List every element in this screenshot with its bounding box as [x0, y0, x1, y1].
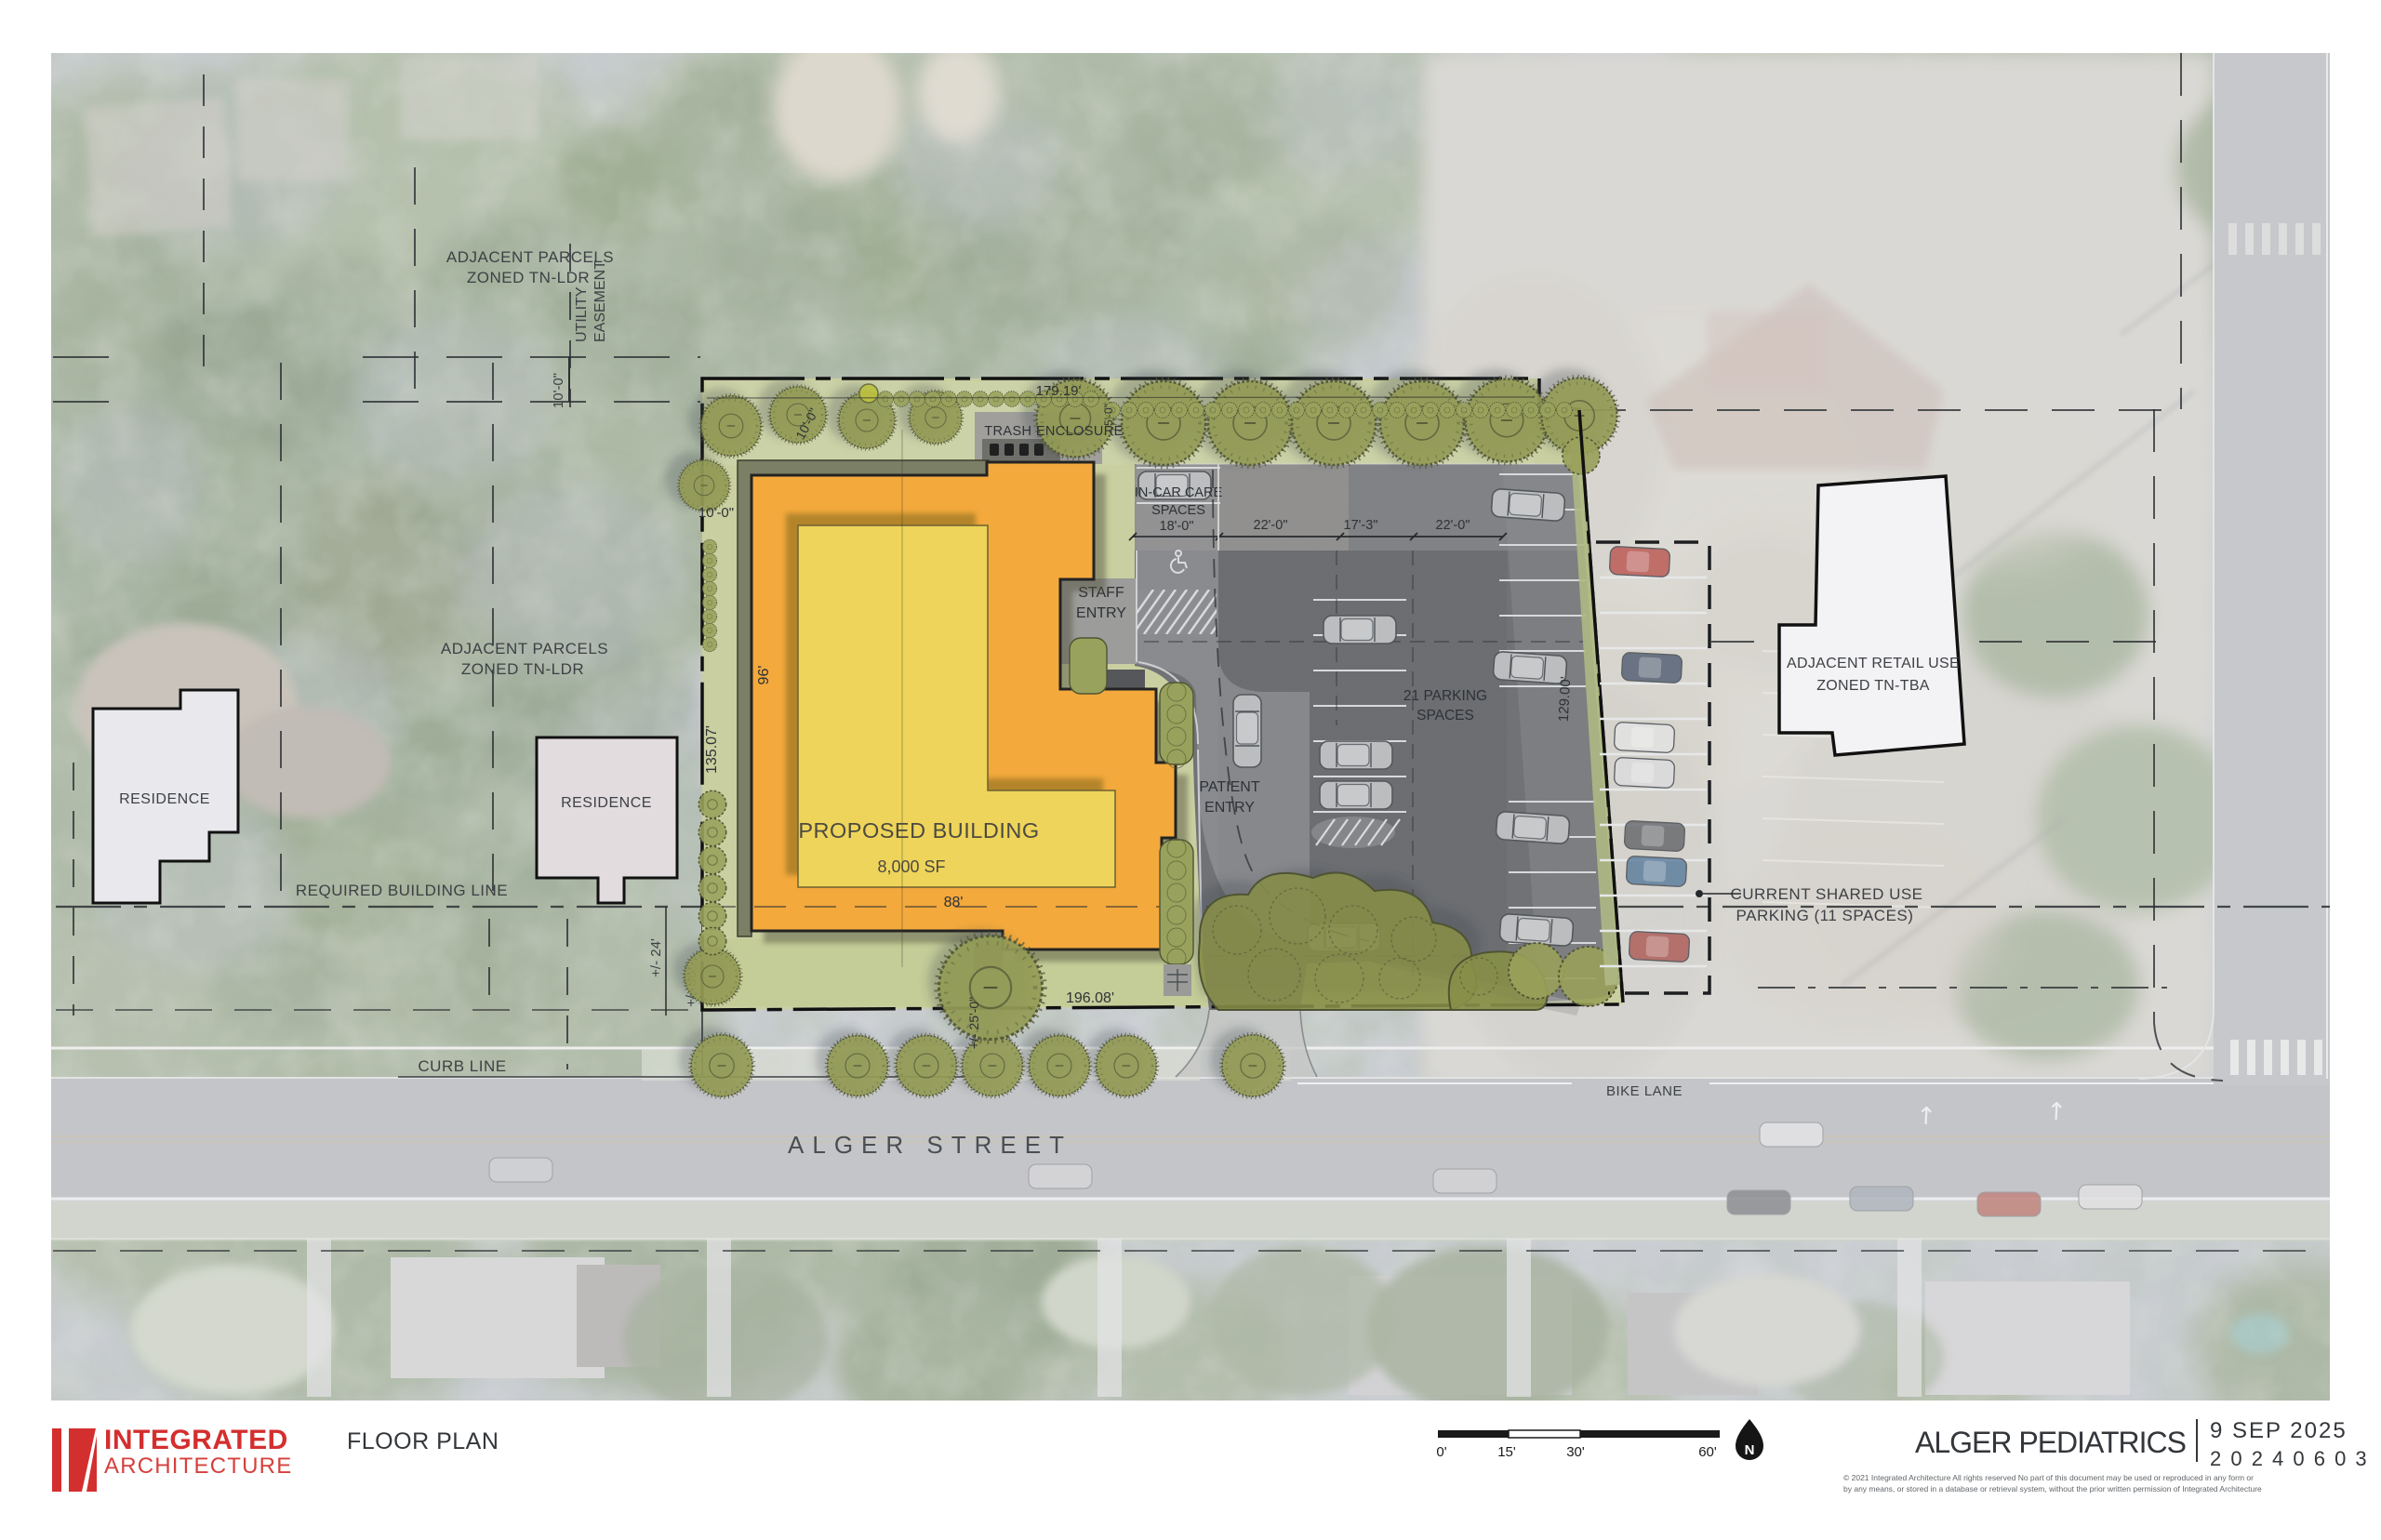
svg-text:SPACES: SPACES — [1151, 503, 1205, 518]
svg-text:0': 0' — [1436, 1444, 1446, 1460]
svg-text:9 SEP 2025: 9 SEP 2025 — [2210, 1418, 2348, 1443]
svg-text:PROPOSED BUILDING: PROPOSED BUILDING — [798, 818, 1039, 843]
svg-text:RESIDENCE: RESIDENCE — [119, 791, 210, 807]
svg-text:ZONED TN-LDR: ZONED TN-LDR — [461, 660, 584, 678]
svg-text:30': 30' — [1566, 1444, 1585, 1460]
svg-text:FLOOR PLAN: FLOOR PLAN — [347, 1428, 499, 1454]
svg-text:60': 60' — [1698, 1444, 1717, 1460]
svg-text:SPACES: SPACES — [1417, 708, 1474, 724]
svg-text:© 2021 Integrated Architect: © 2021 Integrated Architecture All right… — [1843, 1473, 2254, 1482]
svg-text:ENTRY: ENTRY — [1204, 800, 1255, 816]
svg-text:5'-0": 5'-0" — [1102, 404, 1115, 426]
svg-text:BIKE LANE: BIKE LANE — [1606, 1083, 1683, 1099]
svg-text:15': 15' — [1497, 1444, 1516, 1460]
svg-text:INTEGRATED: INTEGRATED — [104, 1425, 288, 1455]
svg-text:10'-0": 10'-0" — [551, 373, 566, 408]
svg-text:17'-3": 17'-3" — [1344, 518, 1378, 533]
svg-text:96': 96' — [756, 666, 772, 685]
svg-text:ARCHITECTURE: ARCHITECTURE — [104, 1454, 292, 1479]
svg-text:ZONED TN-LDR: ZONED TN-LDR — [467, 269, 590, 286]
svg-text:RESIDENCE: RESIDENCE — [561, 795, 652, 811]
svg-text:by any means, or stored i: by any means, or stored in a database or… — [1843, 1484, 2262, 1494]
svg-text:18'-0": 18'-0" — [1160, 519, 1194, 534]
svg-text:UTILITY: UTILITY — [574, 286, 590, 342]
svg-text:+/- 25'-0": +/- 25'-0" — [966, 997, 981, 1049]
svg-text:CURRENT SHARED USE: CURRENT SHARED USE — [1730, 885, 1922, 903]
svg-text:CURB LINE: CURB LINE — [418, 1057, 506, 1075]
svg-text:N: N — [1745, 1442, 1755, 1458]
svg-text:ADJACENT PARCELS: ADJACENT PARCELS — [441, 640, 608, 657]
svg-text:88': 88' — [944, 895, 964, 910]
svg-text:2 0 2 4 0 6 0 3: 2 0 2 4 0 6 0 3 — [2210, 1447, 2369, 1470]
svg-text:PATIENT: PATIENT — [1199, 779, 1259, 795]
svg-text:135.07': 135.07' — [704, 725, 720, 774]
svg-text:EASEMENT: EASEMENT — [592, 260, 608, 342]
svg-text:REQUIRED BUILDING LINE: REQUIRED BUILDING LINE — [296, 882, 508, 899]
svg-text:ALGER PEDIATRICS: ALGER PEDIATRICS — [1915, 1426, 2186, 1459]
svg-text:IN-CAR CARE: IN-CAR CARE — [1135, 485, 1223, 500]
svg-text:ENTRY: ENTRY — [1076, 605, 1126, 621]
svg-text:21 PARKING: 21 PARKING — [1403, 688, 1487, 704]
svg-text:ALGER STREET: ALGER STREET — [788, 1131, 1072, 1159]
svg-text:10'-0": 10'-0" — [698, 505, 734, 521]
svg-text:22'-0": 22'-0" — [1436, 518, 1470, 533]
svg-text:179.19': 179.19' — [1036, 383, 1082, 399]
svg-text:ADJACENT RETAIL USE: ADJACENT RETAIL USE — [1787, 656, 1960, 671]
svg-text:22'-0": 22'-0" — [1254, 518, 1288, 533]
svg-text:196.08': 196.08' — [1066, 990, 1114, 1006]
svg-text:8,000 SF: 8,000 SF — [877, 857, 945, 876]
svg-text:ADJACENT PARCELS: ADJACENT PARCELS — [446, 248, 614, 266]
svg-text:129.00': 129.00' — [1556, 676, 1575, 723]
svg-text:+/- 24': +/- 24' — [648, 938, 664, 977]
svg-text:ZONED TN-TBA: ZONED TN-TBA — [1816, 678, 1930, 694]
svg-text:PARKING (11 SPACES): PARKING (11 SPACES) — [1736, 907, 1914, 924]
